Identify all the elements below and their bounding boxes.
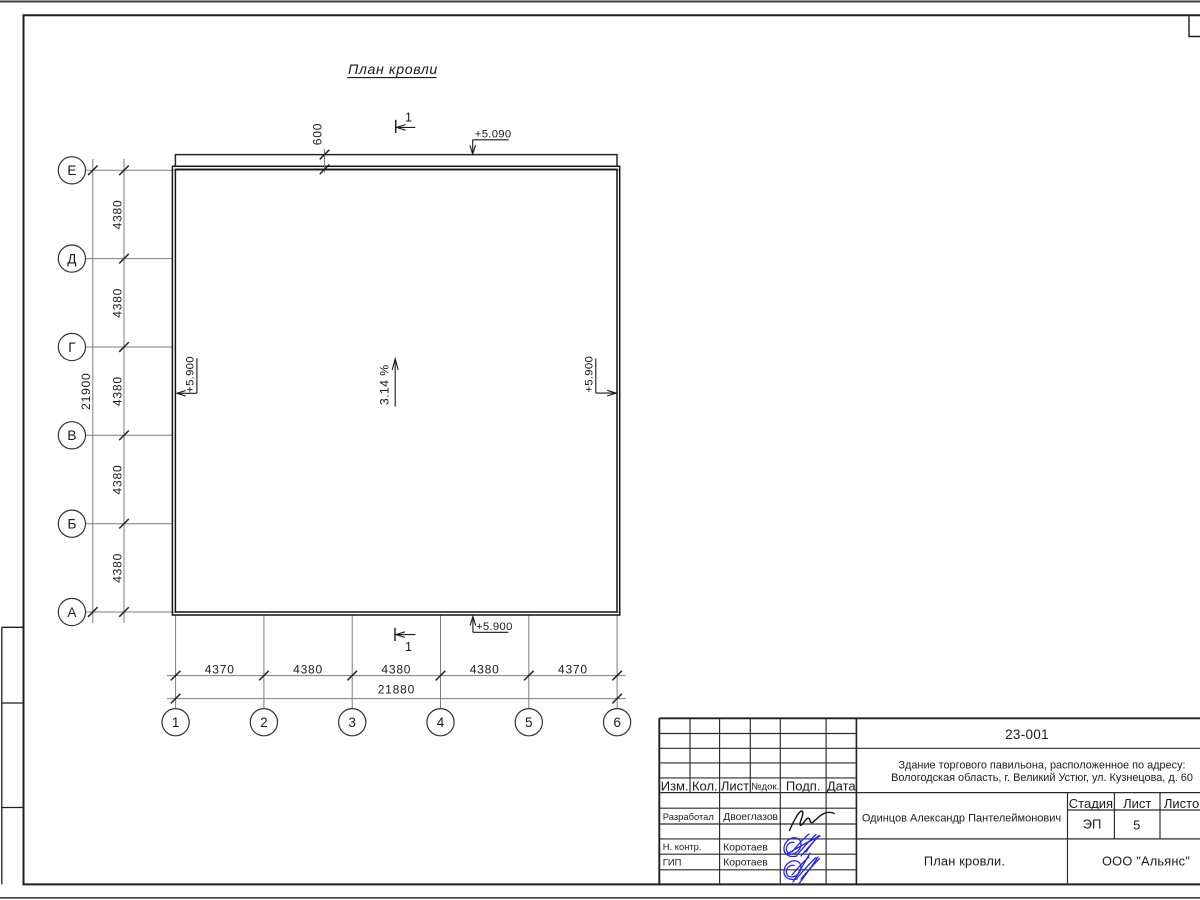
- svg-text:Д: Д: [67, 252, 76, 267]
- svg-text:А: А: [67, 605, 77, 620]
- svg-text:Кол.: Кол.: [692, 778, 718, 793]
- svg-text:6: 6: [613, 715, 621, 730]
- svg-text:4380: 4380: [470, 662, 500, 676]
- svg-text:Листов: Листов: [1164, 796, 1200, 811]
- svg-text:Подп.: Подп.: [786, 778, 821, 793]
- svg-text:Стадия: Стадия: [1069, 796, 1113, 811]
- svg-text:3.14 %: 3.14 %: [377, 364, 391, 405]
- svg-text:Коротаев: Коротаев: [723, 842, 768, 853]
- svg-text:1: 1: [405, 111, 412, 125]
- svg-text:Лист: Лист: [721, 778, 749, 793]
- svg-text:Изм.: Изм.: [661, 778, 689, 793]
- svg-text:5: 5: [1133, 818, 1140, 833]
- svg-text:4370: 4370: [205, 662, 235, 676]
- svg-text:Двоеглазов: Двоеглазов: [723, 812, 778, 823]
- svg-text:+5.900: +5.900: [584, 356, 596, 393]
- svg-text:№док.: №док.: [751, 782, 779, 793]
- svg-text:Коротаев: Коротаев: [723, 858, 768, 869]
- svg-text:Здание торгового павильона, ра: Здание торгового павильона, расположенно…: [898, 759, 1185, 771]
- svg-text:Г: Г: [68, 340, 76, 355]
- svg-text:План кровли.: План кровли.: [924, 854, 1005, 869]
- svg-text:1: 1: [405, 640, 412, 654]
- svg-text:2: 2: [260, 715, 268, 730]
- svg-text:+5.900: +5.900: [476, 621, 513, 633]
- svg-text:4: 4: [437, 715, 445, 730]
- svg-text:Б: Б: [67, 517, 76, 532]
- svg-text:600: 600: [310, 123, 324, 145]
- svg-text:4380: 4380: [110, 288, 124, 318]
- svg-text:Одинцов Александр Пантелеймоно: Одинцов Александр Пантелеймонович: [862, 812, 1061, 824]
- svg-text:4380: 4380: [293, 662, 323, 676]
- svg-text:Е: Е: [67, 163, 76, 178]
- svg-text:4380: 4380: [110, 376, 124, 406]
- svg-text:+5.090: +5.090: [475, 128, 512, 140]
- svg-text:В: В: [67, 428, 76, 443]
- svg-text:Разработал: Разработал: [663, 811, 714, 822]
- svg-text:23-001: 23-001: [1005, 727, 1049, 742]
- svg-text:21900: 21900: [79, 372, 93, 409]
- svg-text:ГИП: ГИП: [663, 856, 682, 867]
- svg-text:4380: 4380: [110, 465, 124, 495]
- svg-text:4380: 4380: [381, 662, 411, 676]
- svg-text:Дата: Дата: [827, 778, 857, 793]
- svg-text:Вологодская область, г. Велики: Вологодская область, г. Великий Устюг, у…: [891, 772, 1193, 784]
- svg-text:Лист: Лист: [1123, 796, 1151, 811]
- svg-text:+5.900: +5.900: [185, 356, 197, 393]
- svg-text:ООО "Альянс": ООО "Альянс": [1102, 853, 1190, 868]
- svg-text:План кровли: План кровли: [348, 62, 438, 78]
- svg-text:4380: 4380: [110, 199, 124, 229]
- svg-text:5: 5: [525, 715, 533, 730]
- svg-text:21880: 21880: [378, 683, 415, 697]
- svg-text:4380: 4380: [110, 553, 124, 583]
- svg-text:3: 3: [348, 715, 356, 730]
- svg-text:ЭП: ЭП: [1083, 817, 1102, 832]
- svg-text:4370: 4370: [558, 662, 588, 676]
- svg-text:Н. контр.: Н. контр.: [663, 841, 702, 852]
- svg-text:1: 1: [172, 715, 180, 730]
